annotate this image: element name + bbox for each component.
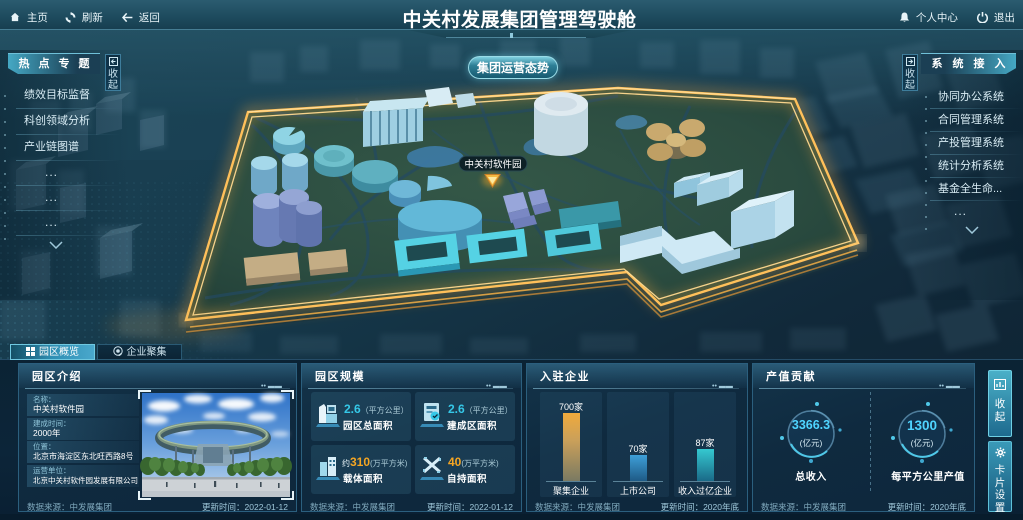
- svg-text:中关村软件园: 中关村软件园: [464, 159, 521, 171]
